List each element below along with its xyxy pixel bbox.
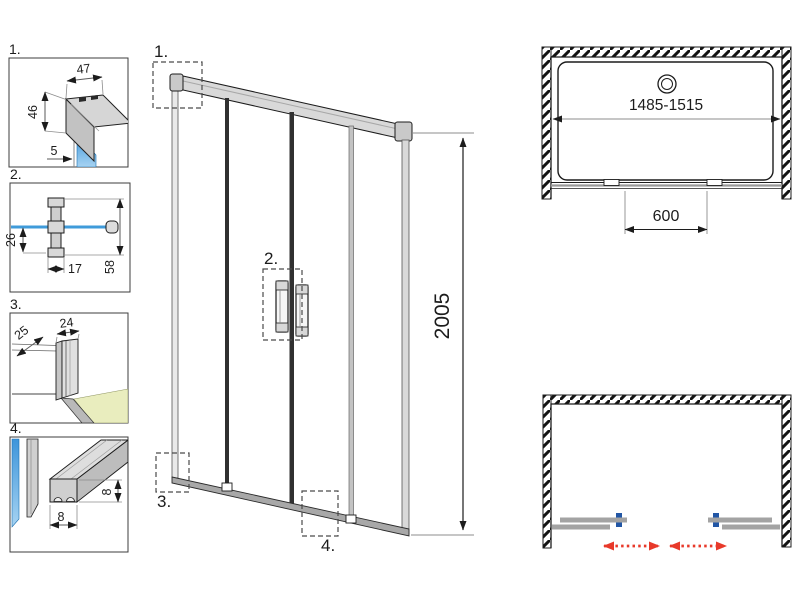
detail-view-3: 3. 24 25 — [10, 296, 128, 423]
detail-view-1: 1. 47 46 5 — [9, 41, 131, 167]
handle-marker-right — [713, 513, 719, 518]
dim-17: 17 — [68, 262, 82, 276]
handle-marker-left — [616, 523, 622, 528]
fixed-panel-left — [552, 525, 610, 530]
detail-2-label: 2. — [10, 166, 22, 182]
plan-view-operation — [543, 395, 791, 548]
detail-view-2: 2. 26 17 58 — [4, 166, 130, 292]
front-view: 1. 2. 3. 4. 2005 — [153, 42, 474, 555]
left-wall-profile — [172, 88, 178, 478]
callout-label-4: 4. — [321, 536, 335, 555]
detail-4-label: 4. — [10, 420, 22, 436]
dim-5: 5 — [51, 144, 58, 158]
sliding-panel-right — [708, 518, 772, 523]
wall-left — [542, 47, 551, 199]
technical-drawing-page: 1. 47 46 5 2. — [0, 0, 800, 600]
sliding-panel-left — [560, 518, 627, 523]
callout-label-1: 1. — [154, 42, 168, 61]
dim-8-width: 8 — [58, 510, 65, 524]
glass-panel — [12, 439, 19, 527]
dim-width-range: 1485-1515 — [629, 97, 703, 114]
fixed-panel-right — [722, 525, 780, 530]
dim-46: 46 — [26, 105, 40, 119]
handle-marker-right — [713, 523, 719, 528]
dim-opening: 600 — [653, 208, 680, 225]
wall-top — [543, 395, 791, 404]
detail-1-label: 1. — [9, 41, 21, 57]
detail-view-4: 4. 8 8 — [10, 420, 128, 552]
callout-label-3: 3. — [157, 492, 171, 511]
roller-bracket-left — [604, 180, 619, 186]
handle-section — [48, 198, 64, 257]
roller-bracket-right — [707, 180, 722, 186]
roller-foot-right — [346, 515, 356, 523]
dim-47: 47 — [76, 61, 92, 77]
wall-left — [543, 395, 551, 548]
guide-profile-left — [56, 341, 62, 400]
panel-stile-center — [290, 112, 295, 504]
panel-stile-left — [225, 98, 229, 485]
wall-right — [782, 47, 791, 199]
dim-58: 58 — [103, 260, 117, 274]
right-wall-profile — [402, 140, 409, 534]
roller-foot-left — [222, 483, 232, 491]
rail-end-cap-right — [395, 122, 412, 141]
shower-tray — [558, 62, 773, 180]
panel-stile-right — [349, 126, 354, 517]
handle-marker-left — [616, 513, 622, 518]
dim-2005: 2005 — [431, 293, 454, 340]
dim-8-height: 8 — [100, 488, 114, 495]
dim-26: 26 — [4, 233, 18, 247]
wall-profile-strip — [27, 439, 38, 517]
handle-end-cap — [106, 221, 118, 233]
callout-label-2: 2. — [264, 249, 278, 268]
plan-view-top: 1485-1515 600 — [542, 47, 791, 234]
detail-3-label: 3. — [10, 296, 22, 312]
door-handle-left — [276, 281, 288, 332]
drawing-canvas: 1. 47 46 5 2. — [0, 0, 800, 600]
wall-top — [542, 47, 791, 57]
rail-end-cap-left — [170, 74, 183, 91]
wall-right — [782, 395, 791, 547]
dim-24: 24 — [59, 315, 75, 331]
